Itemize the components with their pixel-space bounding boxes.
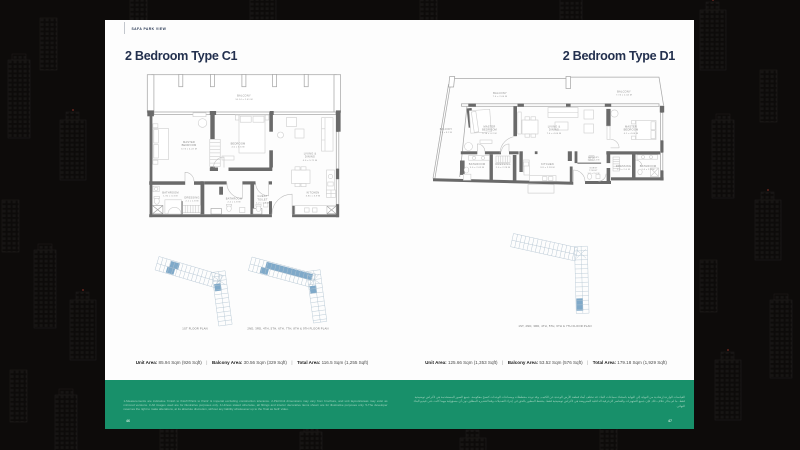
svg-text:3.74 x 4.22 M: 3.74 x 4.22 M (181, 148, 197, 150)
svg-text:BATHROOM: BATHROOM (162, 191, 178, 195)
svg-text:BEDROOM: BEDROOM (231, 142, 246, 146)
svg-text:BALCONY: BALCONY (440, 128, 453, 131)
svg-text:BALCONY: BALCONY (617, 90, 631, 94)
svg-text:KITCHEN: KITCHEN (541, 162, 554, 166)
svg-text:BEDROOM: BEDROOM (624, 128, 639, 132)
svg-text:4.0 x 3.6 M: 4.0 x 3.6 M (231, 147, 244, 149)
svg-text:3.8 x 2.28 M: 3.8 x 2.28 M (540, 167, 554, 169)
svg-text:4.1 x 4.04 M: 4.1 x 4.04 M (624, 133, 638, 135)
svg-text:BALCONY: BALCONY (493, 91, 507, 95)
svg-text:3.0 x 2.03 M: 3.0 x 2.03 M (470, 167, 484, 169)
svg-text:KITCHEN: KITCHEN (307, 191, 320, 195)
svg-text:BATHROOM: BATHROOM (226, 197, 242, 201)
svg-text:DINING: DINING (305, 155, 315, 159)
svg-text:5.16 x 4.2 M: 5.16 x 4.2 M (482, 133, 496, 135)
svg-text:1.2 x 1.8 M: 1.2 x 1.8 M (256, 202, 269, 204)
svg-text:BATHROOM: BATHROOM (640, 164, 656, 168)
svg-text:7.4 x 2.04 M: 7.4 x 2.04 M (493, 96, 507, 98)
svg-text:7.74 x 2.04 M: 7.74 x 2.04 M (616, 95, 632, 97)
svg-text:DRESSING: DRESSING (616, 164, 631, 168)
svg-text:2.0 x 2.28 M: 2.0 x 2.28 M (496, 167, 510, 169)
svg-text:BEDROOM: BEDROOM (182, 143, 197, 147)
svg-text:1.2 x 2.0 M: 1.2 x 2.0 M (587, 173, 599, 175)
svg-text:2ND, 3RD, 4TH, 5TH, 6TH, 7TH,: 2ND, 3RD, 4TH, 5TH, 6TH, 7TH, 8TH & 9TH … (247, 327, 328, 331)
svg-text:1ST, 2ND, 3RD, 4TH, 5TH, 6TH &: 1ST, 2ND, 3RD, 4TH, 5TH, 6TH & 7TH FLOOR… (518, 324, 591, 328)
svg-text:LAUNDRY: LAUNDRY (588, 156, 600, 159)
svg-text:2.2 x 1.8 M: 2.2 x 1.8 M (227, 202, 240, 204)
svg-text:1.9 x 2.0 M: 1.9 x 2.0 M (617, 169, 630, 171)
svg-text:BATHROOM: BATHROOM (469, 162, 485, 166)
svg-text:TOILET: TOILET (257, 197, 267, 201)
svg-text:1.91 x 3.3 M: 1.91 x 3.3 M (163, 196, 177, 198)
svg-text:BEDROOM: BEDROOM (482, 128, 497, 132)
svg-text:7.4 x 4.04 M: 7.4 x 4.04 M (547, 133, 561, 135)
svg-text:1.6 x 2.6 M: 1.6 x 2.6 M (641, 169, 654, 171)
svg-text:DINING: DINING (549, 128, 559, 132)
svg-text:4.0 x 5.71 M: 4.0 x 5.71 M (303, 160, 317, 162)
svg-text:DRESSING: DRESSING (184, 196, 199, 200)
svg-text:1.0 x 1.4 M: 1.0 x 1.4 M (587, 160, 599, 162)
svg-text:3.81 x 3.9 M: 3.81 x 3.9 M (306, 196, 320, 198)
svg-text:10.14 x 2.41 M: 10.14 x 2.41 M (235, 99, 252, 101)
svg-text:DRESSING: DRESSING (495, 162, 510, 166)
svg-text:1ST FLOOR PLAN: 1ST FLOOR PLAN (182, 327, 207, 331)
svg-text:3.6 x 8.2 M: 3.6 x 8.2 M (440, 132, 452, 134)
svg-text:2.1 x 1.8 M: 2.1 x 1.8 M (185, 201, 198, 203)
svg-text:BALCONY: BALCONY (237, 94, 251, 98)
